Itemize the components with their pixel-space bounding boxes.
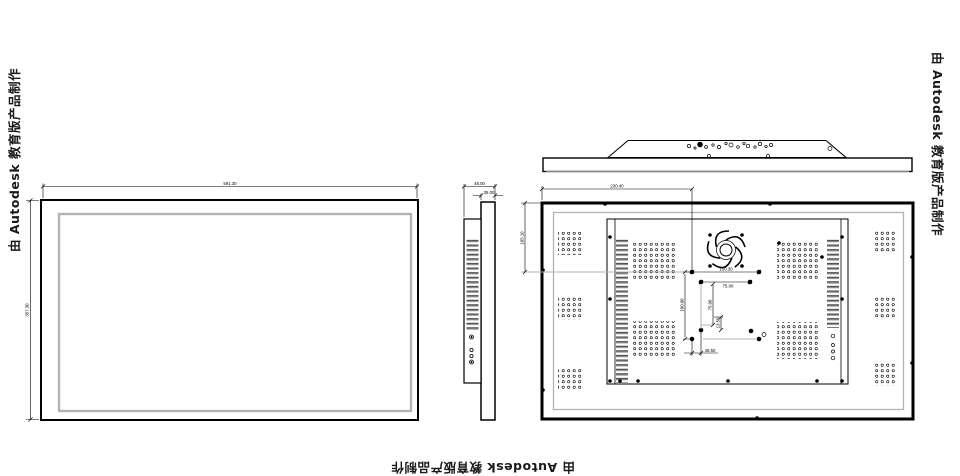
vent-grid (633, 243, 675, 280)
front-height-label: 357.30 (25, 303, 30, 317)
vent-grid (873, 296, 896, 319)
vent-grid (558, 297, 581, 320)
autodesk-watermark-bottom: 由 Autodesk 教育版产品制作 (388, 459, 578, 476)
side-total-depth-label: 48.00 (474, 181, 485, 186)
monitor-three-view-drawing: 591.30 357.30 48.00 35.00 (0, 0, 960, 476)
vent-grid (777, 322, 819, 359)
front-width-dimension: 591.30 (41, 181, 419, 198)
side-vent-grille (467, 238, 479, 330)
back-vertical-offset-label: 105.10 (520, 231, 525, 245)
vesa-v-inner-label: 75.00 (708, 299, 713, 310)
autodesk-watermark-left: 由 Autodesk 教育版产品制作 (4, 68, 23, 252)
front-width-label: 591.30 (223, 181, 237, 186)
vesa-h-small-label: 48.50 (705, 348, 716, 353)
vesa-h-inner-label: 75.00 (723, 283, 734, 288)
vent-grid (558, 367, 581, 390)
side-panel-depth-dimension: 35.00 (473, 190, 503, 200)
vent-grid (633, 321, 675, 358)
autodesk-watermark-right: 由 Autodesk 教育版产品制作 (929, 52, 948, 236)
side-view: 48.00 35.00 (462, 181, 503, 420)
side-panel-depth-label: 35.00 (484, 190, 495, 195)
vesa-v-small-label: 13.50 (716, 317, 721, 328)
front-bezel-outline (41, 200, 418, 420)
back-view: 230.40 105.10 150.30 75.00 100.00 75.00 … (520, 184, 914, 420)
vent-grid (777, 242, 819, 279)
cad-drawing-canvas: 591.30 357.30 48.00 35.00 (0, 0, 960, 476)
front-view: 591.30 357.30 (25, 181, 420, 421)
vesa-v-outer-label: 100.00 (680, 298, 685, 312)
vesa-h-outer-label: 150.30 (719, 267, 733, 272)
back-left-vent-grille (616, 238, 628, 383)
top-view (543, 141, 912, 172)
back-horizontal-offset-label: 230.40 (610, 184, 624, 189)
top-bezel-outline (543, 158, 912, 172)
vent-grid (558, 232, 581, 255)
back-vertical-offset-dimension: 105.10 (520, 201, 545, 274)
back-right-vent-grille (827, 238, 839, 328)
vent-grid (873, 230, 896, 253)
side-panel-outline (481, 202, 495, 420)
front-height-dimension: 357.30 (25, 199, 40, 422)
vent-grid (873, 363, 896, 386)
